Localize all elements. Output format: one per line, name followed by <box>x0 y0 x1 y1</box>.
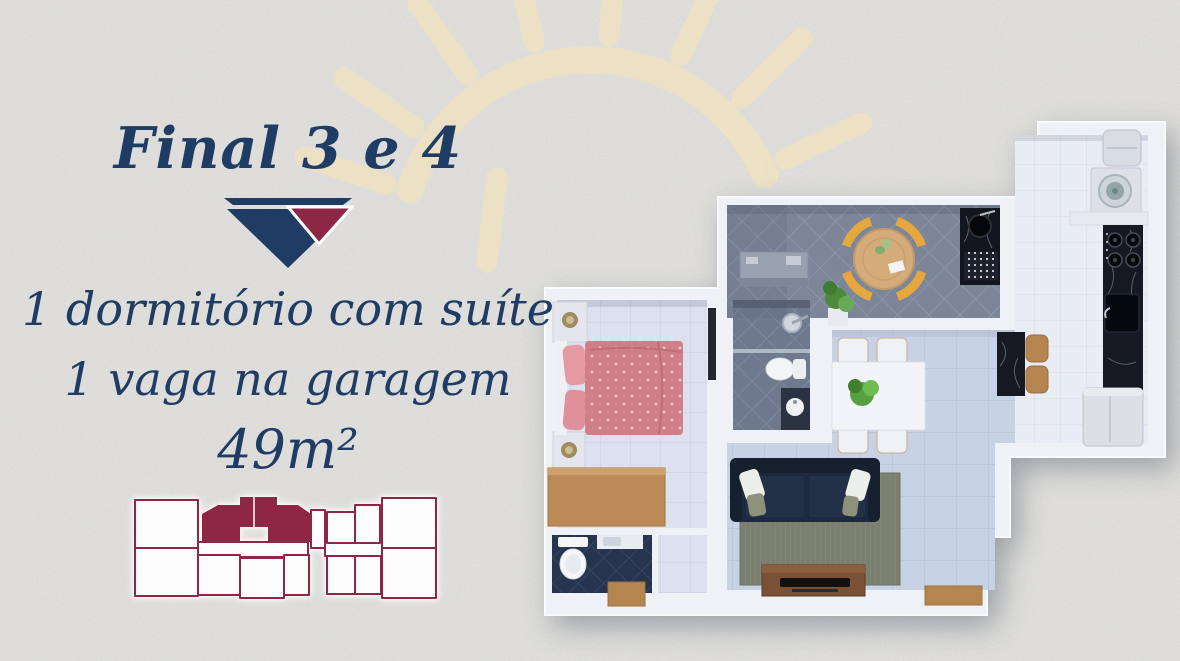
bath-hall-floor <box>658 535 707 593</box>
wood-mat <box>608 582 645 606</box>
kitchen-counter <box>1103 225 1143 392</box>
refrigerator <box>1083 388 1143 446</box>
wardrobe <box>708 308 716 380</box>
keyplan-unit <box>198 555 240 595</box>
round-sink <box>969 215 991 237</box>
dining-table <box>832 362 925 430</box>
tv-icon <box>780 578 850 587</box>
flyer-canvas: Final 3 e 4 1 dormitório com suíte 1 vag… <box>0 0 1180 661</box>
unit-title: Final 3 e 4 <box>8 112 568 186</box>
sofa <box>730 458 880 522</box>
laundry-shelf <box>1070 212 1148 225</box>
feature-area: 49m² <box>8 414 568 486</box>
feature-dormitorio: 1 dormitório com suíte <box>8 274 568 344</box>
keyplan-unit <box>355 556 381 594</box>
balcony-counter-sink <box>960 208 1000 285</box>
tv-stand <box>762 565 865 596</box>
gourmet-counter <box>740 252 808 286</box>
keyplan-unit <box>327 556 355 594</box>
keyplan-unit <box>355 505 380 543</box>
keyplan-unit <box>327 512 355 543</box>
keyplan-unit <box>284 555 309 595</box>
stool <box>1026 335 1048 362</box>
keyplan-unit <box>240 558 284 598</box>
flower-vase-icon <box>875 246 885 254</box>
building-key-plan <box>130 492 442 610</box>
feature-list: 1 dormitório com suíte 1 vaga na garagem… <box>8 274 568 486</box>
pillow <box>842 495 860 517</box>
keyplan-core <box>311 510 325 548</box>
brand-logo <box>222 198 354 270</box>
stool <box>1026 366 1048 393</box>
round-table-set <box>844 219 924 299</box>
logo-top-bar <box>224 198 352 205</box>
toilet <box>766 358 794 380</box>
keyplan-highlighted-units <box>202 497 311 542</box>
feature-vaga: 1 vaga na garagem <box>8 344 568 414</box>
chair <box>877 338 907 364</box>
chair <box>838 338 868 364</box>
info-panel: Final 3 e 4 1 dormitório com suíte 1 vag… <box>8 112 568 486</box>
vanity-sink <box>781 388 810 430</box>
kitchen-sink <box>1105 294 1139 332</box>
washing-machine <box>1091 168 1141 214</box>
entry-doormat <box>925 586 982 605</box>
glass-shelf <box>733 349 810 353</box>
floor-plan-3d <box>540 112 1180 627</box>
